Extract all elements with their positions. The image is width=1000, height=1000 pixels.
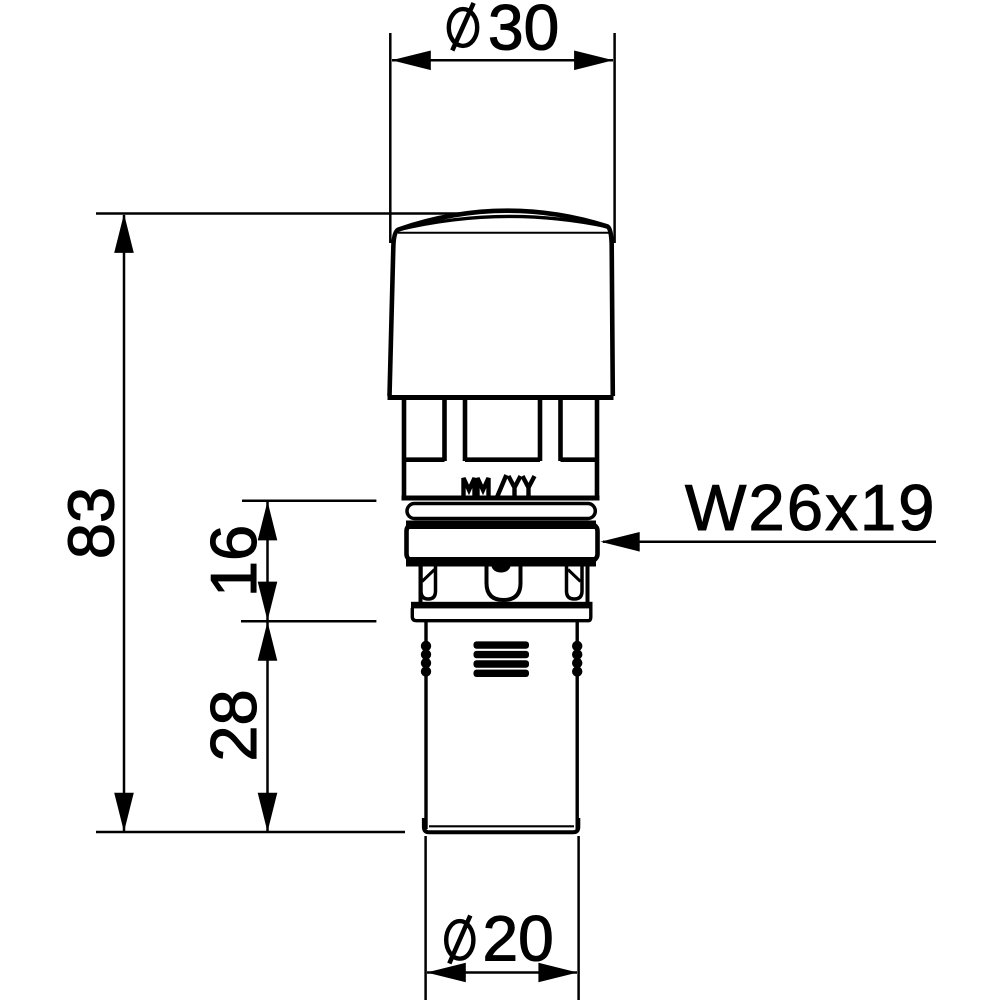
svg-text:20: 20 (483, 903, 554, 975)
svg-text:W26x19: W26x19 (685, 471, 937, 544)
svg-text:28: 28 (197, 689, 270, 761)
svg-text:83: 83 (55, 487, 128, 559)
svg-text:16: 16 (197, 525, 270, 597)
svg-text:30: 30 (488, 0, 559, 63)
